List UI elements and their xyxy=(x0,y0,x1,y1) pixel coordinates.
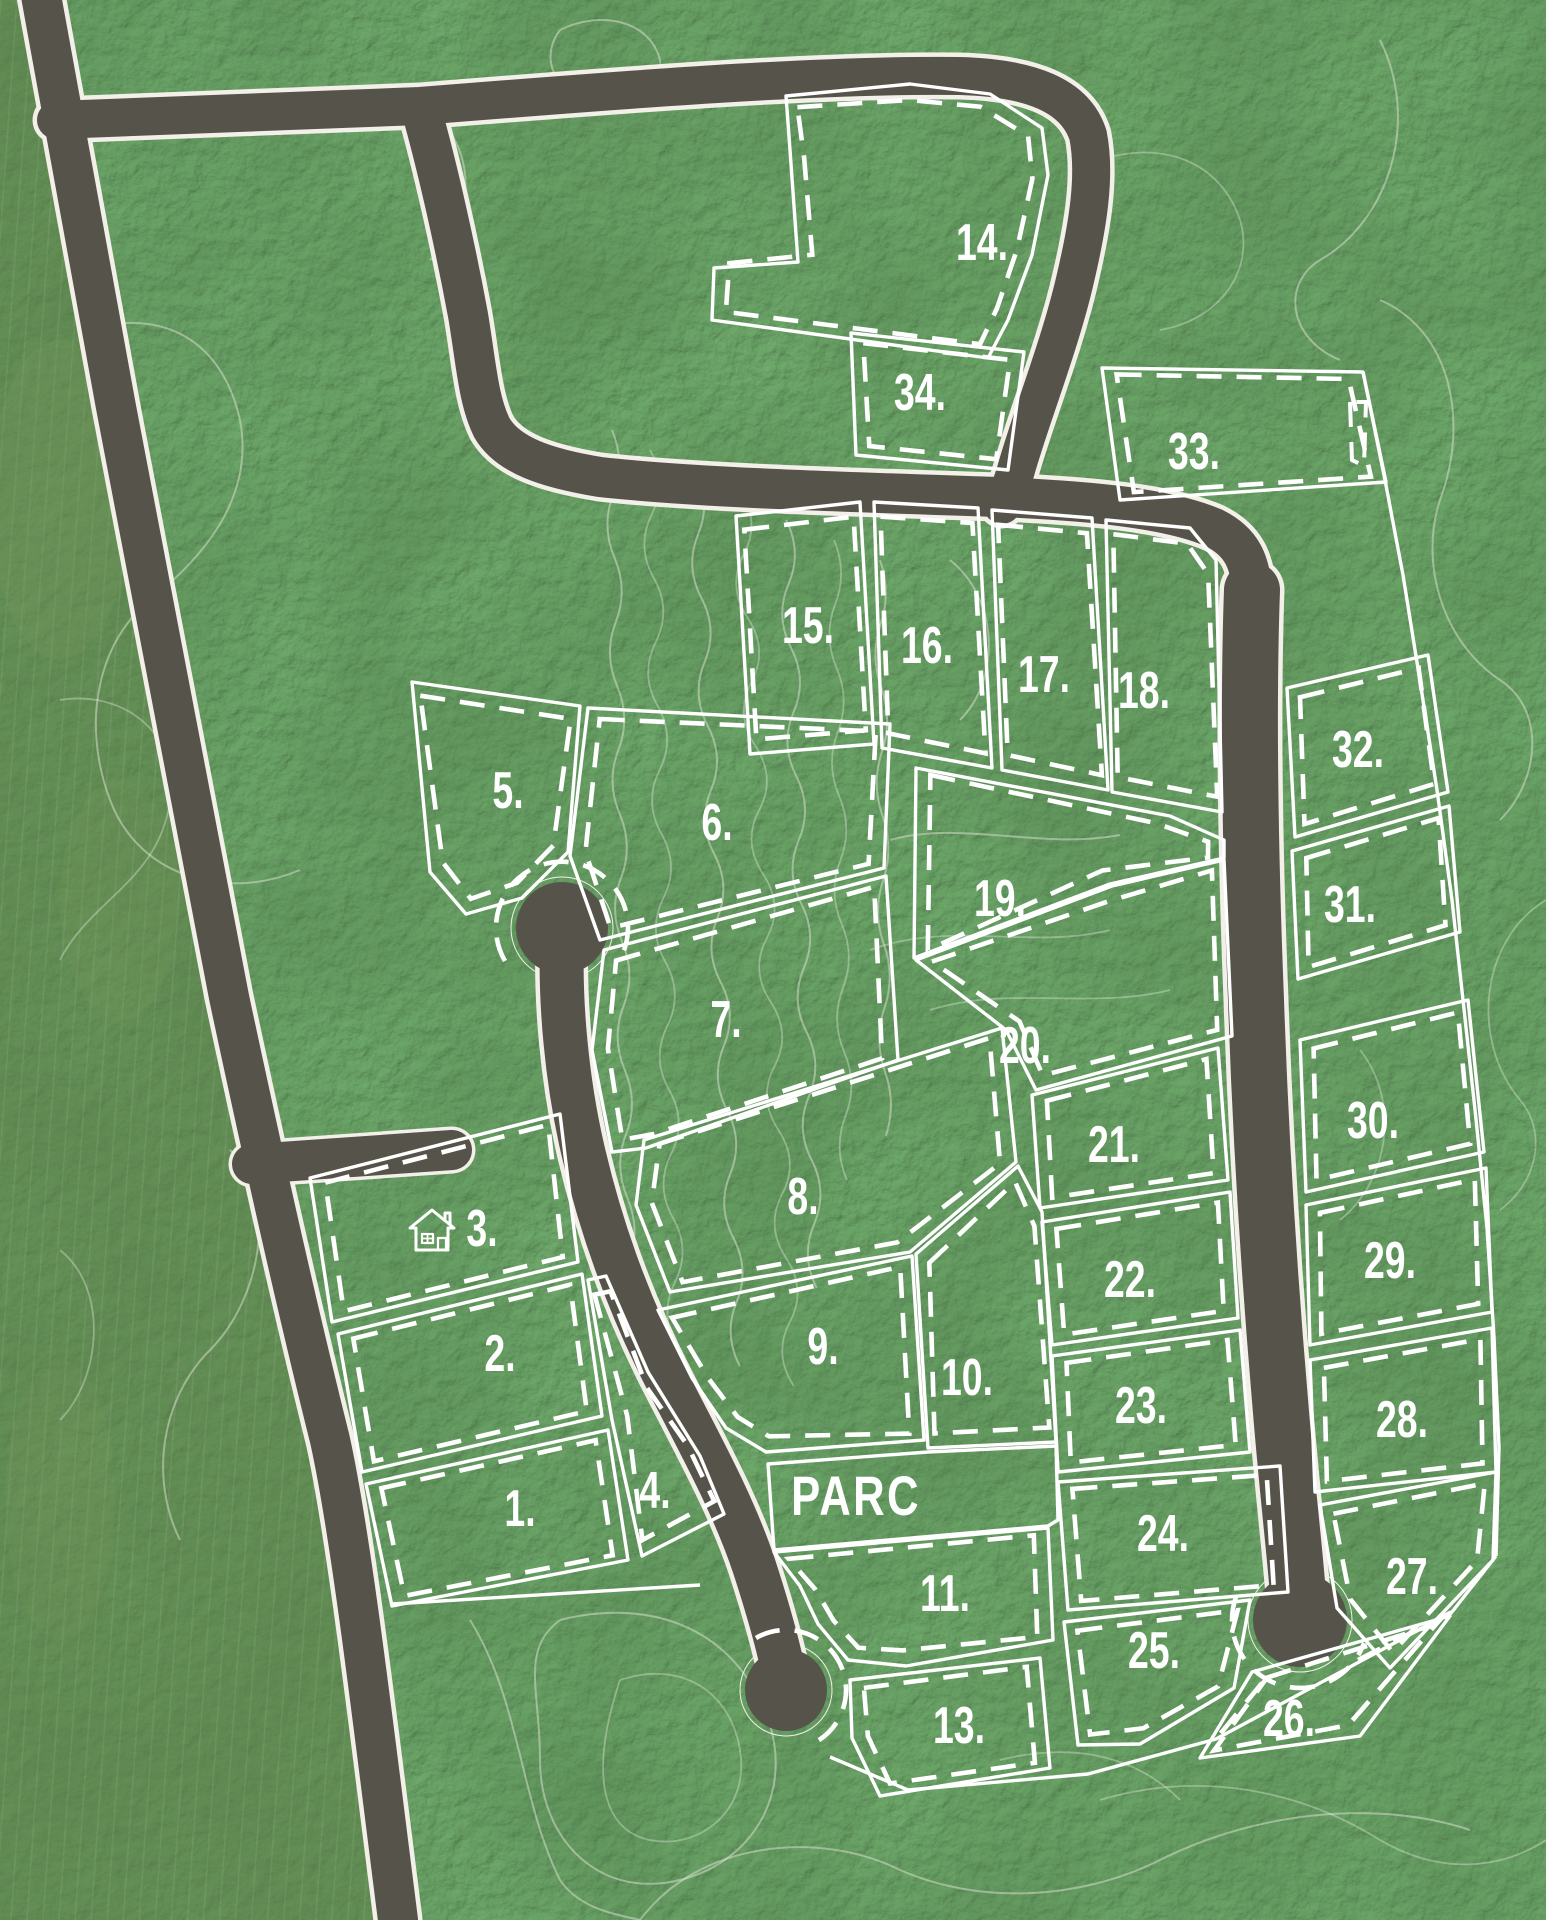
lot-number-label-30: 30. xyxy=(1347,1091,1399,1150)
lot-number-label-34: 34. xyxy=(894,363,946,422)
lot-number-label-3: 3. xyxy=(466,1199,497,1258)
lot-number-label-2: 2. xyxy=(484,1324,515,1383)
lot-number-label-19: 19. xyxy=(974,869,1026,928)
lot-number-label-18: 18. xyxy=(1118,661,1170,720)
lot-number-label-16: 16. xyxy=(901,616,953,675)
lot-number-label-22: 22. xyxy=(1104,1250,1156,1309)
lot-number-label-13: 13. xyxy=(933,1696,985,1755)
lot-number-label-20: 20. xyxy=(999,1016,1051,1075)
lot-number-label-10: 10. xyxy=(941,1348,993,1407)
lot-number-label-17: 17. xyxy=(1018,645,1070,704)
lot-number-label-24: 24. xyxy=(1137,1504,1189,1563)
lot-number-label-27: 27. xyxy=(1386,1547,1438,1606)
lot-number-label-5: 5. xyxy=(492,761,523,820)
lot-number-label-21: 21. xyxy=(1088,1115,1140,1174)
lot-number-label-29: 29. xyxy=(1364,1231,1416,1290)
lot-number-label-4: 4. xyxy=(639,1461,670,1520)
lot-number-label-28: 28. xyxy=(1376,1390,1428,1449)
lot-number-label-1: 1. xyxy=(504,1479,535,1538)
lot-number-label-6: 6. xyxy=(701,793,732,852)
lot-number-label-14: 14. xyxy=(956,213,1008,272)
lot-number-label-11: 11. xyxy=(920,1564,970,1623)
lot-number-label-7: 7. xyxy=(710,990,741,1049)
lot-number-label-8: 8. xyxy=(787,1167,818,1226)
lot-number-label-31: 31. xyxy=(1324,875,1376,934)
lot-number-label-26: 26. xyxy=(1263,1689,1315,1748)
lot-number-label-15: 15. xyxy=(782,596,834,655)
lot-number-label-23: 23. xyxy=(1115,1376,1167,1435)
lot-number-label-25: 25. xyxy=(1128,1621,1180,1680)
site-plan-map: 1.2.3.4.5.6.7.8.9.10.11.13.14.15.16.17.1… xyxy=(0,0,1546,1920)
lot-number-label-32: 32. xyxy=(1332,720,1384,779)
parc-label: PARC xyxy=(791,1465,921,1527)
lot-number-label-33: 33. xyxy=(1168,422,1220,481)
lot-number-label-9: 9. xyxy=(807,1317,838,1376)
site-plan-screenshot: 1.2.3.4.5.6.7.8.9.10.11.13.14.15.16.17.1… xyxy=(0,0,1546,1920)
